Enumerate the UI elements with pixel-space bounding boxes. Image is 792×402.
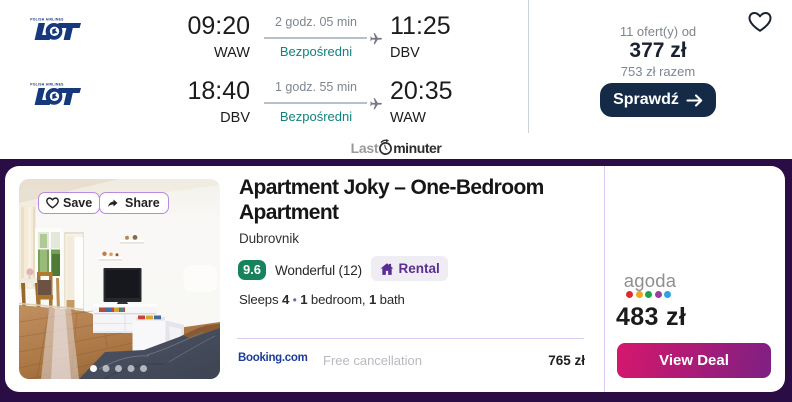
- svg-text:POLISH AIRLINES: POLISH AIRLINES: [30, 18, 64, 22]
- svg-text:POLISH AIRLINES: POLISH AIRLINES: [30, 83, 64, 87]
